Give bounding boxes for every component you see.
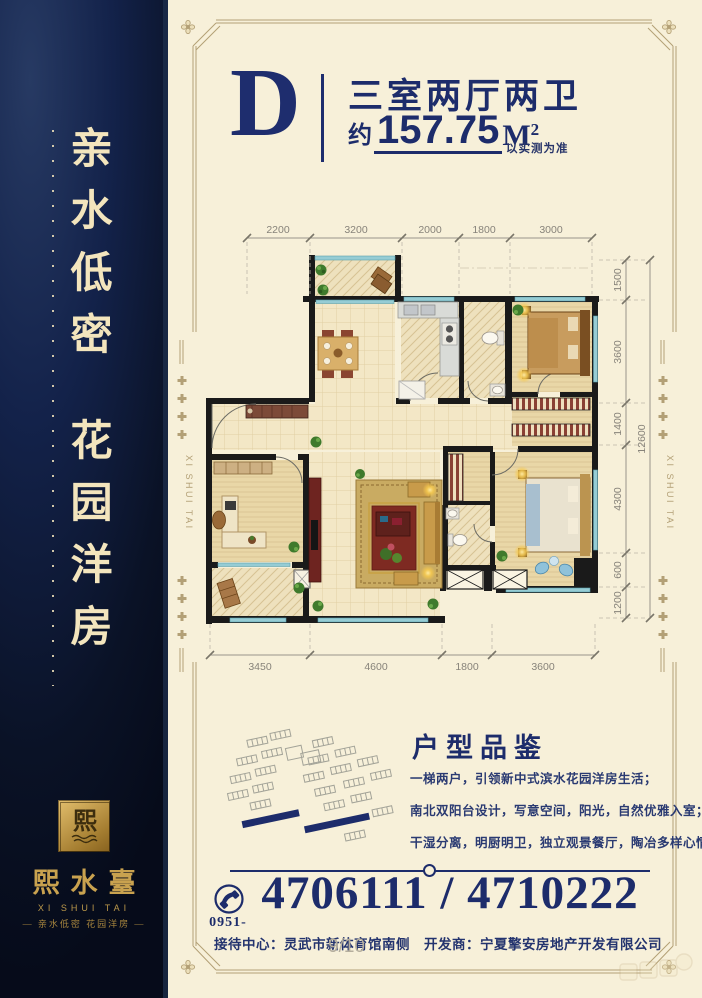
dim-label: 3600 <box>612 340 624 364</box>
features-title: 户型品鉴 <box>412 726 548 765</box>
header-divider <box>321 74 324 162</box>
dim-label: 3450 <box>248 661 272 673</box>
dim-label: 3600 <box>531 661 555 673</box>
frame-side-label: XI SHUI TAI <box>665 455 675 531</box>
dim-label: 3200 <box>344 225 368 236</box>
dim-label: 1400 <box>612 412 624 436</box>
dim-label: 4600 <box>364 661 388 673</box>
floor-plan-svg: 2200 3200 2000 1800 3000 3450 4600 1800 … <box>185 225 665 680</box>
area-superscript: 2 <box>531 120 540 140</box>
dim-label: 2000 <box>418 225 442 236</box>
area-value: 157.75 <box>374 110 502 154</box>
dotted-divider <box>52 130 54 686</box>
logo-waves-icon <box>70 834 100 844</box>
dim-label: 1500 <box>612 268 624 292</box>
unit-letter: D <box>230 54 301 152</box>
dim-label: 1800 <box>472 225 496 236</box>
area-note: 以实测为准 <box>506 140 569 156</box>
dim-label: 1800 <box>455 661 479 673</box>
wardrobe-cabinet <box>512 424 590 436</box>
slogan-primary: 亲水低密 <box>66 126 108 374</box>
dim-label: 3000 <box>539 225 563 236</box>
dim-label: 4300 <box>612 487 624 511</box>
site-plan-sketch <box>225 720 400 865</box>
feature-line: 南北双阳台设计，写意空间，阳光，自然优雅入室； <box>410 800 680 819</box>
address-line: 接待中心：灵武市新体育馆南侧 开发商：宁夏擎安房地产开发有限公司 <box>208 933 668 953</box>
brand-logo: 熙 熙水臺 XI SHUI TAI — 亲水低密 花园洋房 — <box>0 800 168 930</box>
page-number: 9/10 <box>328 936 365 958</box>
closet-cabinet <box>448 454 463 501</box>
shoe-cabinet <box>246 405 308 418</box>
phone-icon <box>213 883 245 915</box>
poster-page: 亲水低密 花园洋房 熙 熙水臺 XI SHUI TAI — 亲水低密 花园洋房 … <box>0 0 702 998</box>
phone-numbers: 4706111 / 4710222 <box>248 868 652 920</box>
slogan-secondary: 花园洋房 <box>66 418 108 666</box>
feature-line: 干湿分离，明厨明卫，独立观景餐厅，陶冶多样心情 <box>410 832 680 851</box>
logo-tagline: — 亲水低密 花园洋房 — <box>0 917 168 930</box>
dim-label-total: 12600 <box>636 424 648 453</box>
area-prefix: 约 <box>348 115 372 154</box>
logo-name: 熙水臺 <box>0 861 168 900</box>
features-list: 一梯两户，引领新中式滨水花园洋房生活； 南北双阳台设计，写意空间，阳光，自然优雅… <box>410 768 680 864</box>
logo-mark-icon: 熙 <box>58 800 110 852</box>
highlighted-building <box>304 813 370 834</box>
wardrobe-cabinet <box>512 398 590 410</box>
content-area: XI SHUI TAI XI SHUI TAI D 三室两厅两卫 约 157.7… <box>168 0 702 998</box>
feature-line: 一梯两户，引领新中式滨水花园洋房生活； <box>410 768 680 787</box>
logo-mark-character: 熙 <box>73 810 97 834</box>
dim-label: 1200 <box>612 591 624 615</box>
dim-label: 600 <box>612 561 624 579</box>
highlighted-building <box>242 809 300 828</box>
corner-watermark <box>616 946 700 992</box>
logo-name-en: XI SHUI TAI <box>0 903 168 913</box>
dim-label: 2200 <box>266 225 290 236</box>
brand-sidebar: 亲水低密 花园洋房 熙 熙水臺 XI SHUI TAI — 亲水低密 花园洋房 … <box>0 0 168 998</box>
